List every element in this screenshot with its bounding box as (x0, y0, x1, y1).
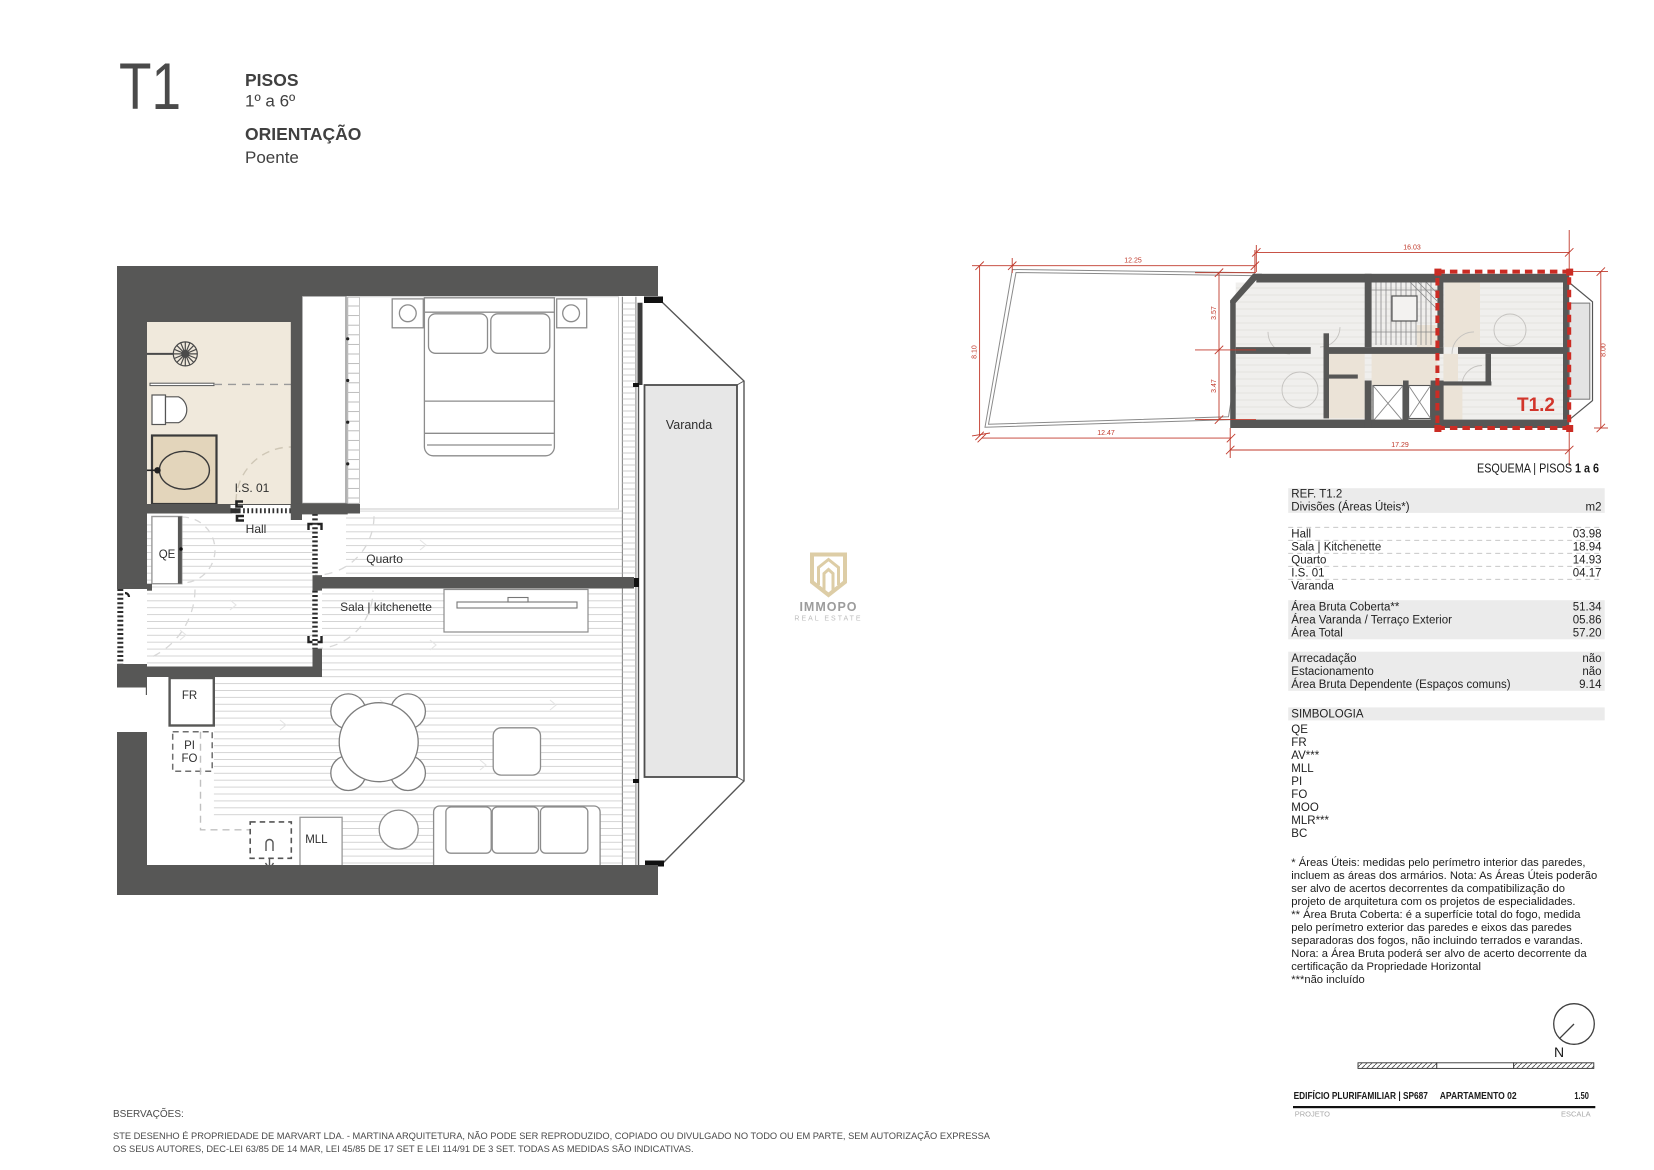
svg-text:Quarto: Quarto (1291, 555, 1326, 567)
svg-text:QE: QE (1291, 724, 1308, 736)
svg-text:FO: FO (1291, 789, 1307, 801)
svg-text:Área Bruta Coberta**: Área Bruta Coberta** (1291, 601, 1400, 614)
svg-text:não: não (1582, 653, 1601, 665)
svg-text:MLL: MLL (305, 834, 328, 846)
svg-text:***não incluído: ***não incluído (1291, 974, 1364, 986)
svg-text:FR: FR (1291, 737, 1306, 749)
svg-text:MLR***: MLR*** (1291, 815, 1329, 827)
svg-text:Área Varanda / Terraço Exterio: Área Varanda / Terraço Exterior (1291, 614, 1452, 627)
svg-text:3.57: 3.57 (1211, 306, 1218, 320)
svg-text:BC: BC (1291, 828, 1307, 840)
svg-text:Hall: Hall (1291, 529, 1311, 541)
svg-text:* Áreas Úteis: medidas pelo pe: * Áreas Úteis: medidas pelo perímetro in… (1291, 856, 1585, 869)
svg-text:ESQUEMA | PISOS 1 a 6: ESQUEMA | PISOS 1 a 6 (1477, 462, 1599, 476)
svg-text:Quarto: Quarto (366, 552, 403, 566)
svg-text:m2: m2 (1586, 502, 1602, 514)
svg-text:MOO: MOO (1291, 802, 1319, 814)
svg-text:Varanda: Varanda (1291, 581, 1334, 593)
svg-text:** Área Bruta Coberta: é a sup: ** Área Bruta Coberta: é a superfície to… (1291, 908, 1581, 921)
svg-text:16.03: 16.03 (1403, 244, 1421, 251)
svg-text:12.47: 12.47 (1097, 430, 1115, 437)
svg-text:Arrecadação: Arrecadação (1291, 653, 1356, 665)
svg-text:SIMBOLOGIA: SIMBOLOGIA (1291, 708, 1364, 720)
svg-text:1.50: 1.50 (1574, 1090, 1589, 1102)
svg-text:ESCALA: ESCALA (1561, 1110, 1591, 1119)
svg-text:T1.2: T1.2 (1517, 395, 1555, 416)
svg-text:REF. T1.2: REF. T1.2 (1291, 489, 1342, 501)
svg-text:IMMOPO: IMMOPO (799, 600, 857, 614)
svg-text:MLL: MLL (1291, 763, 1314, 775)
svg-text:05.86: 05.86 (1573, 615, 1602, 627)
svg-text:não: não (1582, 666, 1601, 678)
svg-text:ORIENTAÇÃO: ORIENTAÇÃO (245, 123, 361, 144)
svg-text:Área Bruta Dependente (Espaços: Área Bruta Dependente (Espaços comuns) (1291, 678, 1510, 691)
svg-text:PISOS: PISOS (245, 70, 299, 90)
svg-text:51.34: 51.34 (1573, 602, 1602, 614)
svg-text:8.10: 8.10 (972, 345, 979, 359)
svg-text:EDIFÍCIO PLURIFAMILIAR | SP687: EDIFÍCIO PLURIFAMILIAR | SP687 (1294, 1089, 1428, 1102)
svg-text:03.98: 03.98 (1573, 529, 1602, 541)
svg-text:1º a 6º: 1º a 6º (245, 92, 295, 111)
svg-text:PI: PI (1291, 776, 1302, 788)
svg-text:BSERVAÇÕES:: BSERVAÇÕES: (113, 1107, 184, 1120)
svg-text:PI: PI (184, 740, 195, 752)
svg-text:separadoras dos fogos, não inc: separadoras dos fogos, não incluindo ter… (1291, 935, 1583, 947)
svg-text:8.00: 8.00 (1601, 343, 1608, 357)
svg-text:PROJETO: PROJETO (1295, 1110, 1330, 1119)
svg-text:Nora: a Área Bruta poderá ser: Nora: a Área Bruta poderá ser alvo de ac… (1291, 947, 1587, 960)
svg-text:REAL ESTATE: REAL ESTATE (794, 616, 862, 623)
svg-text:FO: FO (182, 753, 198, 765)
svg-text:pelo perímetro exterior das pa: pelo perímetro exterior das paredes e ei… (1291, 922, 1572, 934)
svg-text:incluem as áreas dos armários.: incluem as áreas dos armários. Nota: As … (1291, 869, 1597, 882)
svg-text:04.17: 04.17 (1573, 568, 1602, 580)
svg-text:I.S. 01: I.S. 01 (235, 481, 270, 495)
svg-text:certificação da Propriedade Ho: certificação da Propriedade Horizontal (1291, 961, 1481, 973)
svg-text:Varanda: Varanda (666, 418, 712, 432)
svg-text:N: N (1554, 1044, 1564, 1060)
svg-text:APARTAMENTO 02: APARTAMENTO 02 (1440, 1090, 1517, 1102)
svg-text:3.47: 3.47 (1211, 379, 1218, 393)
svg-text:14.93: 14.93 (1573, 555, 1602, 567)
svg-text:Área Total: Área Total (1291, 627, 1343, 640)
svg-text:57.20: 57.20 (1573, 628, 1602, 640)
svg-text:OS SEUS AUTORES, DEC-LEI 63/85: OS SEUS AUTORES, DEC-LEI 63/85 DE 14 MAR… (113, 1144, 694, 1154)
svg-text:projeto de arquitetura com os: projeto de arquitetura com os projetos d… (1291, 896, 1575, 908)
svg-text:T1: T1 (119, 49, 181, 123)
svg-text:AV***: AV*** (1291, 750, 1319, 762)
svg-text:QE: QE (159, 549, 176, 561)
svg-text:Estacionamento: Estacionamento (1291, 666, 1373, 678)
svg-text:9.14: 9.14 (1579, 679, 1602, 691)
svg-text:Hall: Hall (246, 522, 267, 536)
svg-text:Sala | kitchenette: Sala | kitchenette (340, 600, 432, 614)
svg-text:STE DESENHO É PROPRIEDADE DE M: STE DESENHO É PROPRIEDADE DE MARVART LDA… (113, 1131, 991, 1141)
svg-text:12.25: 12.25 (1124, 258, 1142, 265)
svg-text:Sala | Kitchenette: Sala | Kitchenette (1291, 542, 1381, 554)
svg-text:FR: FR (182, 690, 197, 702)
svg-text:ser alvo de acertos decorrente: ser alvo de acertos decorrentes da compa… (1291, 883, 1565, 895)
svg-text:I.S. 01: I.S. 01 (1291, 568, 1324, 580)
svg-text:18.94: 18.94 (1573, 542, 1602, 554)
svg-text:17.29: 17.29 (1391, 442, 1409, 449)
svg-text:Poente: Poente (245, 148, 299, 167)
svg-text:Divisões (Áreas Úteis*): Divisões (Áreas Úteis*) (1291, 501, 1409, 514)
